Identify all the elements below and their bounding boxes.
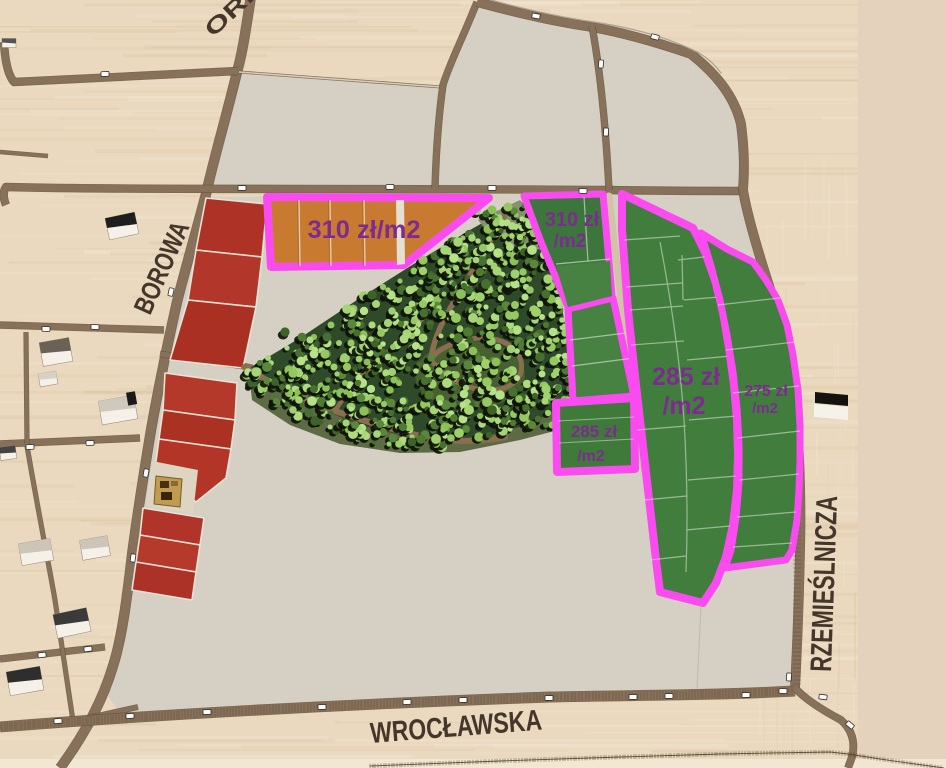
svg-text:/m2: /m2 [554, 231, 587, 252]
svg-text:310 zł: 310 zł [545, 209, 600, 231]
svg-text:310 zł/m2: 310 zł/m2 [308, 216, 421, 244]
svg-text:/m2: /m2 [577, 448, 605, 465]
svg-text:RZEMIEŚLNICZA: RZEMIEŚLNICZA [804, 495, 844, 672]
svg-text:285 zł: 285 zł [571, 422, 618, 441]
svg-text:/m2: /m2 [752, 400, 778, 417]
svg-text:275 zł: 275 zł [744, 383, 788, 400]
svg-text:285 zł: 285 zł [652, 363, 720, 391]
svg-text:/m2: /m2 [662, 392, 705, 420]
